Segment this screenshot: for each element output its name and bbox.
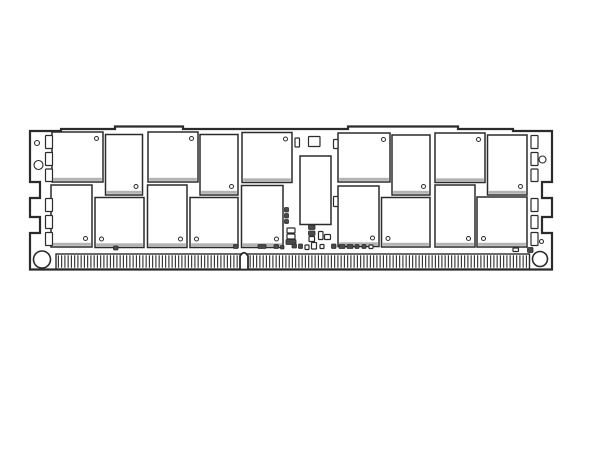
- passive-component: [287, 234, 295, 239]
- board-hole: [35, 141, 40, 146]
- board-hole: [34, 161, 43, 170]
- dram-chip-shadow: [339, 178, 389, 181]
- passive-component: [334, 140, 339, 149]
- passive-component: [46, 136, 53, 149]
- mounting-hole: [533, 252, 548, 267]
- pin1-marker-dot: [275, 237, 279, 241]
- dram-chip-shadow: [393, 191, 429, 194]
- passive-component: [513, 248, 519, 252]
- passive-component: [285, 214, 289, 219]
- pin1-marker-dot: [382, 138, 386, 142]
- passive-component: [309, 137, 321, 147]
- passive-component: [46, 169, 53, 182]
- passive-component: [369, 245, 373, 249]
- passive-component: [320, 245, 324, 249]
- passive-component: [46, 153, 53, 166]
- pin1-marker-dot: [477, 138, 481, 142]
- dram-chip-shadow: [53, 178, 102, 181]
- pin1-marker-dot: [519, 185, 523, 189]
- passive-component: [325, 235, 331, 240]
- passive-component: [234, 245, 239, 249]
- passive-component: [285, 220, 289, 224]
- passive-component: [312, 243, 317, 250]
- pin1-marker-dot: [371, 236, 375, 240]
- passive-component: [258, 245, 266, 249]
- pin1-marker-dot: [179, 237, 183, 241]
- passive-component: [362, 245, 366, 249]
- passive-component: [531, 199, 538, 212]
- passive-component: [531, 136, 538, 149]
- passive-component: [114, 246, 119, 250]
- passive-component: [528, 248, 534, 253]
- board-hole: [539, 156, 546, 163]
- key-notch: [240, 253, 248, 270]
- pin1-marker-dot: [134, 185, 138, 189]
- dram-chip-shadow: [107, 191, 142, 194]
- passive-component: [287, 228, 295, 233]
- passive-component: [274, 245, 279, 249]
- passive-component: [334, 197, 339, 207]
- passive-component: [531, 233, 538, 246]
- passive-component: [355, 245, 359, 249]
- passive-component: [285, 208, 289, 213]
- dram-chip-shadow: [383, 243, 429, 246]
- passive-component: [299, 244, 303, 249]
- dram-chip-shadow: [52, 243, 91, 246]
- passive-component: [531, 216, 538, 229]
- dram-chip-shadow: [201, 191, 237, 194]
- pin1-marker-dot: [84, 237, 88, 241]
- pin1-marker-dot: [467, 237, 471, 241]
- dram-chip-shadow: [149, 243, 186, 246]
- pin1-marker-dot: [422, 185, 426, 189]
- dram-chip-shadow: [149, 178, 197, 181]
- passive-component: [46, 199, 53, 212]
- passive-component: [319, 232, 324, 240]
- dram-chip-shadow: [489, 191, 526, 194]
- dram-chip-shadow: [436, 243, 474, 246]
- passive-component: [309, 225, 316, 230]
- passive-component: [347, 245, 353, 249]
- board-hole: [540, 240, 544, 244]
- dram-chip-shadow: [191, 243, 237, 246]
- passive-component: [309, 237, 315, 242]
- dram-chip-shadow: [96, 243, 143, 246]
- register-chip: [300, 156, 331, 225]
- passive-component: [292, 244, 297, 248]
- passive-component: [531, 169, 538, 182]
- pin1-marker-dot: [482, 237, 486, 241]
- pin1-marker-dot: [284, 137, 288, 141]
- passive-component: [46, 216, 53, 229]
- passive-component: [339, 245, 345, 249]
- dram-chip-shadow: [436, 178, 484, 181]
- passive-component: [46, 233, 53, 246]
- product-image-canvas: [0, 0, 600, 450]
- pin1-marker-dot: [100, 237, 104, 241]
- dram-chip-shadow: [243, 178, 291, 181]
- pin1-marker-dot: [195, 237, 199, 241]
- passive-component: [295, 138, 300, 147]
- passive-component: [332, 244, 337, 249]
- passive-component: [531, 153, 538, 166]
- passive-component: [305, 245, 309, 250]
- passive-component: [281, 246, 285, 250]
- dram-chip-shadow: [478, 243, 526, 246]
- mounting-hole: [34, 251, 51, 268]
- memory-module-illustration: [0, 0, 600, 450]
- pin1-marker-dot: [190, 137, 194, 141]
- pin1-marker-dot: [230, 185, 234, 189]
- pin1-marker-dot: [386, 237, 390, 241]
- pin1-marker-dot: [95, 137, 99, 141]
- passive-component: [309, 231, 316, 236]
